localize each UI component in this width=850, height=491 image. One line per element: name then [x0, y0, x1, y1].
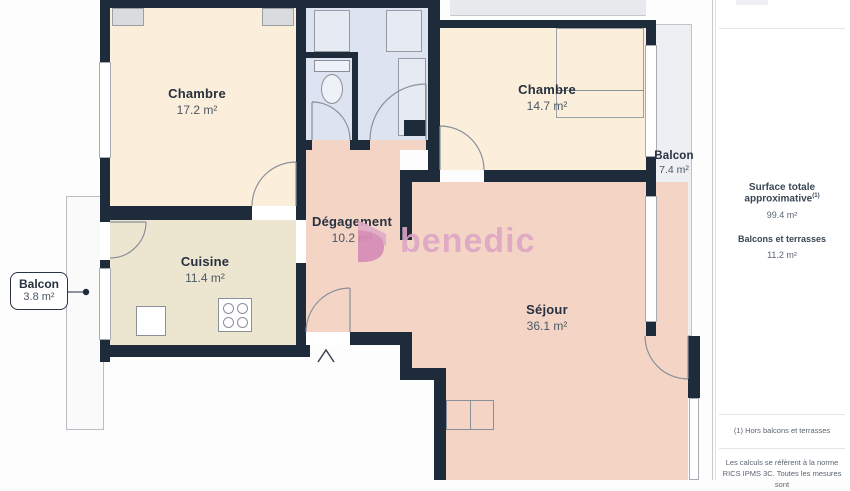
room-area: 14.7 m² [467, 99, 627, 113]
room-name: Cuisine [125, 254, 285, 269]
room-name: Balcon [646, 150, 702, 162]
label-balcon-droit: Balcon 7.4 m² [646, 150, 702, 176]
room-area: 7.4 m² [646, 164, 702, 176]
benedic-logo-icon [352, 218, 392, 264]
callout-balcon-gauche: Balcon 3.8 m² [10, 272, 68, 310]
balconies-label: Balcons et terrasses [717, 234, 847, 244]
sidebar-divider [719, 28, 845, 29]
sidebar-top-box [736, 0, 768, 5]
floorplan-page: Chambre 17.2 m² Chambre 14.7 m² Dégageme… [0, 0, 850, 480]
total-surface-footnote-ref: (1) [812, 193, 819, 199]
room-name: Séjour [467, 302, 627, 317]
room-area: 11.4 m² [125, 271, 285, 285]
label-chambre-1: Chambre 17.2 m² [117, 86, 277, 117]
balconies-value: 11.2 m² [717, 250, 847, 260]
room-area: 36.1 m² [467, 319, 627, 333]
room-name: Balcon [11, 277, 67, 291]
sidebar-divider [719, 414, 845, 415]
watermark-text: benedic [400, 222, 535, 261]
label-chambre-2: Chambre 14.7 m² [467, 82, 627, 113]
total-surface-text: Surface totale approximative [744, 182, 815, 204]
sidebar-divider [719, 448, 845, 449]
room-area: 3.8 m² [11, 291, 67, 303]
room-name: Chambre [467, 82, 627, 97]
watermark: benedic [352, 218, 535, 264]
label-sejour: Séjour 36.1 m² [467, 302, 627, 333]
room-name: Chambre [117, 86, 277, 101]
surface-summary: Surface totale approximative(1) 99.4 m² … [717, 182, 847, 260]
footnote-2: Les calculs se réfèrent à la norme RICS … [721, 458, 843, 491]
footnote-1: (1) Hors balcons et terrasses [721, 426, 843, 437]
info-sidebar: Surface totale approximative(1) 99.4 m² … [712, 0, 850, 480]
total-surface-value: 99.4 m² [717, 210, 847, 220]
total-surface-label: Surface totale approximative(1) [717, 182, 847, 204]
room-area: 17.2 m² [117, 103, 277, 117]
sidebar-inner-line [715, 0, 716, 480]
label-cuisine: Cuisine 11.4 m² [125, 254, 285, 285]
